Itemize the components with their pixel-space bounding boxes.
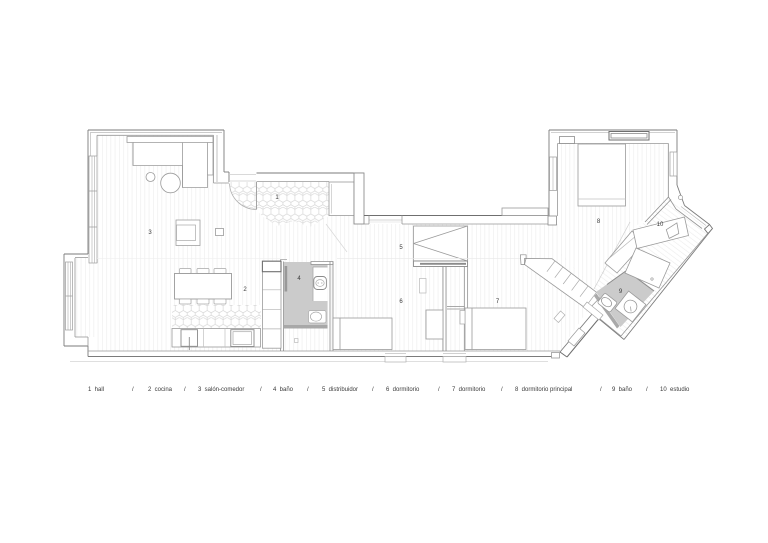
svg-text:10 estudio: 10 estudio [660, 387, 690, 393]
svg-text:2 cocina: 2 cocina [148, 387, 173, 393]
svg-text:/: / [600, 387, 602, 393]
svg-text:/: / [438, 387, 440, 393]
svg-text:/: / [132, 387, 134, 393]
svg-text:/: / [184, 387, 186, 393]
svg-text:/: / [307, 387, 309, 393]
svg-text:7 dormitorio: 7 dormitorio [452, 387, 486, 393]
svg-text:6 dormitorio: 6 dormitorio [386, 387, 420, 393]
svg-text:1 hall: 1 hall [88, 387, 104, 393]
svg-text:/: / [646, 387, 648, 393]
svg-text:10: 10 [657, 222, 664, 228]
svg-text:8 dormitorio principal: 8 dormitorio principal [515, 387, 572, 393]
svg-text:3 salón-comedor: 3 salón-comedor [198, 387, 244, 393]
svg-text:/: / [372, 387, 374, 393]
svg-text:5 distribuidor: 5 distribuidor [322, 387, 358, 393]
svg-text:/: / [501, 387, 503, 393]
svg-text:9 baño: 9 baño [612, 387, 633, 393]
svg-text:4 baño: 4 baño [273, 387, 294, 393]
svg-text:/: / [260, 387, 262, 393]
